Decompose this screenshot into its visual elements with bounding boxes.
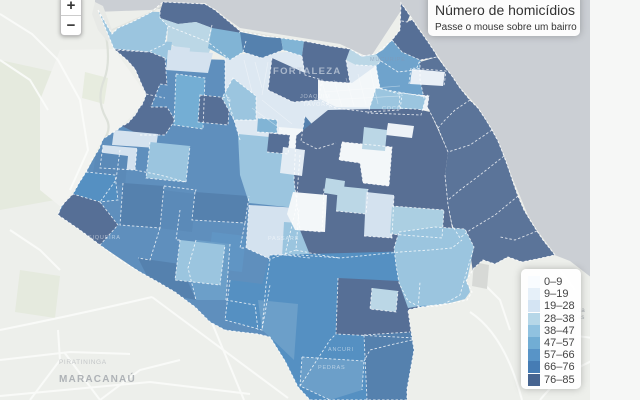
svg-text:PASSARÉ: PASSARÉ [268,235,299,242]
svg-text:ANCURI: ANCURI [328,347,354,353]
svg-text:PIRATININGA: PIRATININGA [59,359,107,366]
svg-text:SIQUEIRA: SIQUEIRA [88,235,121,241]
svg-text:COCÓ: COCÓ [382,105,402,112]
svg-text:TÁVORA: TÁVORA [303,101,330,108]
svg-text:MARACANAÚ: MARACANAÚ [59,372,136,385]
svg-text:MUCURIPE: MUCURIPE [370,57,406,63]
svg-text:FORTALEZA: FORTALEZA [273,66,342,77]
svg-text:JOAQUIM: JOAQUIM [300,94,331,100]
svg-text:PEDRAS: PEDRAS [318,365,345,371]
